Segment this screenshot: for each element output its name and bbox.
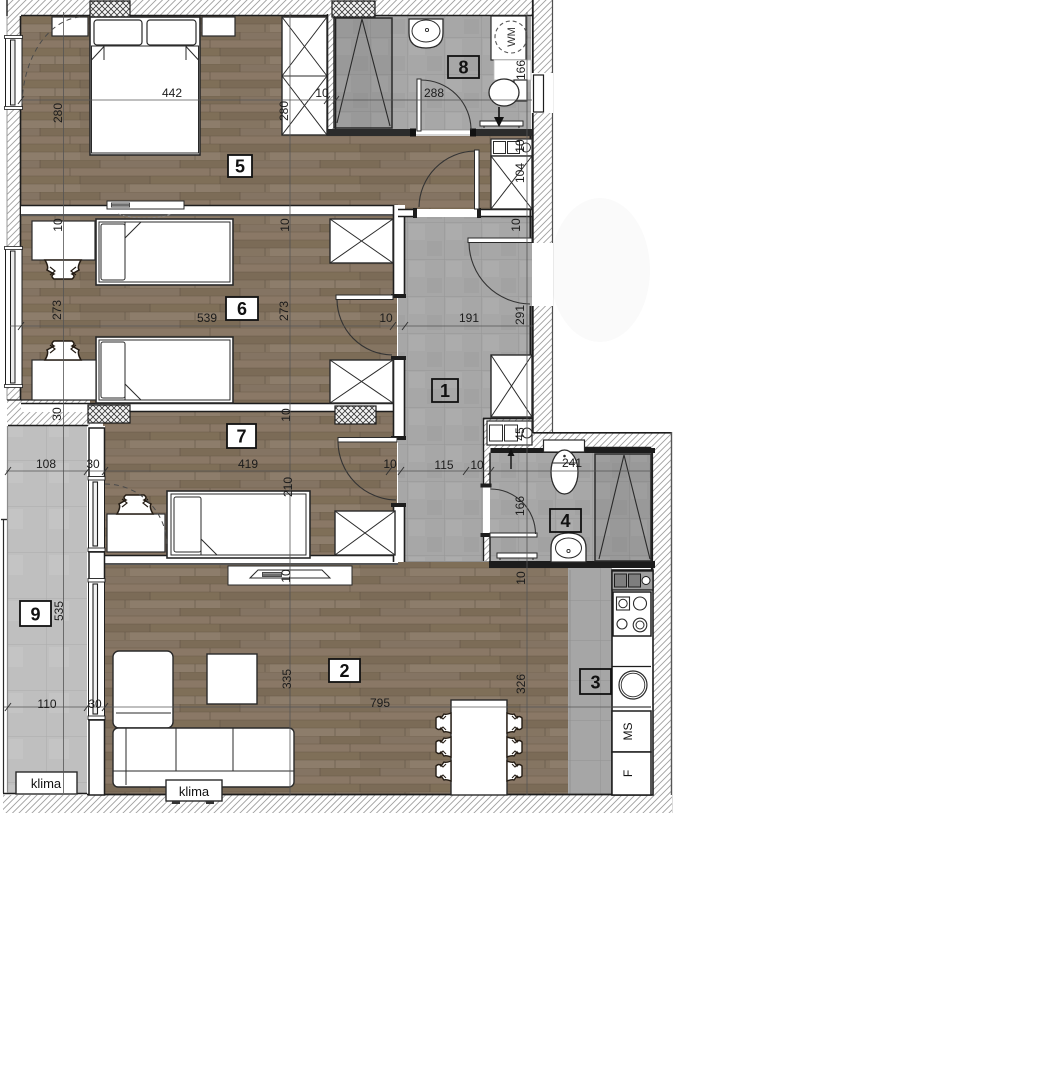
svg-text:104: 104 [513, 163, 527, 183]
svg-text:45: 45 [513, 427, 527, 441]
svg-text:10: 10 [51, 218, 65, 232]
svg-text:166: 166 [513, 496, 527, 516]
svg-text:442: 442 [162, 86, 182, 100]
svg-text:115: 115 [434, 458, 453, 472]
svg-text:3: 3 [590, 673, 600, 693]
svg-text:WM: WM [506, 27, 518, 47]
svg-text:10: 10 [514, 571, 528, 585]
svg-text:288: 288 [424, 86, 444, 100]
svg-text:210: 210 [281, 477, 295, 497]
svg-text:108: 108 [36, 457, 56, 471]
svg-text:273: 273 [277, 301, 291, 321]
svg-text:6: 6 [237, 299, 247, 319]
svg-text:F: F [621, 770, 635, 777]
svg-text:291: 291 [513, 305, 527, 325]
svg-text:10: 10 [470, 458, 484, 472]
svg-text:280: 280 [277, 101, 291, 121]
svg-text:30: 30 [86, 457, 100, 471]
svg-text:5: 5 [235, 157, 245, 177]
svg-text:10: 10 [379, 311, 393, 325]
svg-text:7: 7 [236, 427, 246, 447]
svg-text:535: 535 [52, 601, 66, 621]
svg-text:10: 10 [278, 218, 292, 232]
svg-text:4: 4 [560, 511, 570, 531]
svg-text:10: 10 [279, 569, 293, 583]
svg-text:326: 326 [514, 674, 528, 694]
svg-text:8: 8 [458, 58, 468, 78]
svg-text:795: 795 [370, 696, 390, 710]
svg-text:419: 419 [238, 457, 258, 471]
svg-text:2: 2 [339, 661, 349, 681]
svg-text:10: 10 [383, 457, 397, 471]
svg-text:9: 9 [30, 605, 40, 625]
svg-text:30: 30 [88, 697, 102, 711]
svg-text:273: 273 [50, 300, 64, 320]
svg-text:klima: klima [179, 784, 210, 799]
svg-text:166: 166 [514, 60, 528, 80]
svg-text:191: 191 [459, 311, 479, 325]
svg-text:10: 10 [509, 218, 523, 232]
svg-text:280: 280 [51, 103, 65, 123]
svg-text:1: 1 [440, 381, 450, 401]
svg-text:539: 539 [197, 311, 217, 325]
svg-text:10: 10 [513, 139, 527, 153]
svg-text:10: 10 [279, 408, 293, 422]
svg-text:MS: MS [621, 723, 635, 741]
svg-text:241: 241 [562, 456, 582, 470]
svg-text:110: 110 [37, 697, 56, 711]
svg-text:30: 30 [50, 407, 64, 421]
svg-text:335: 335 [280, 669, 294, 689]
svg-text:klima: klima [31, 776, 62, 791]
svg-text:10: 10 [315, 86, 329, 100]
